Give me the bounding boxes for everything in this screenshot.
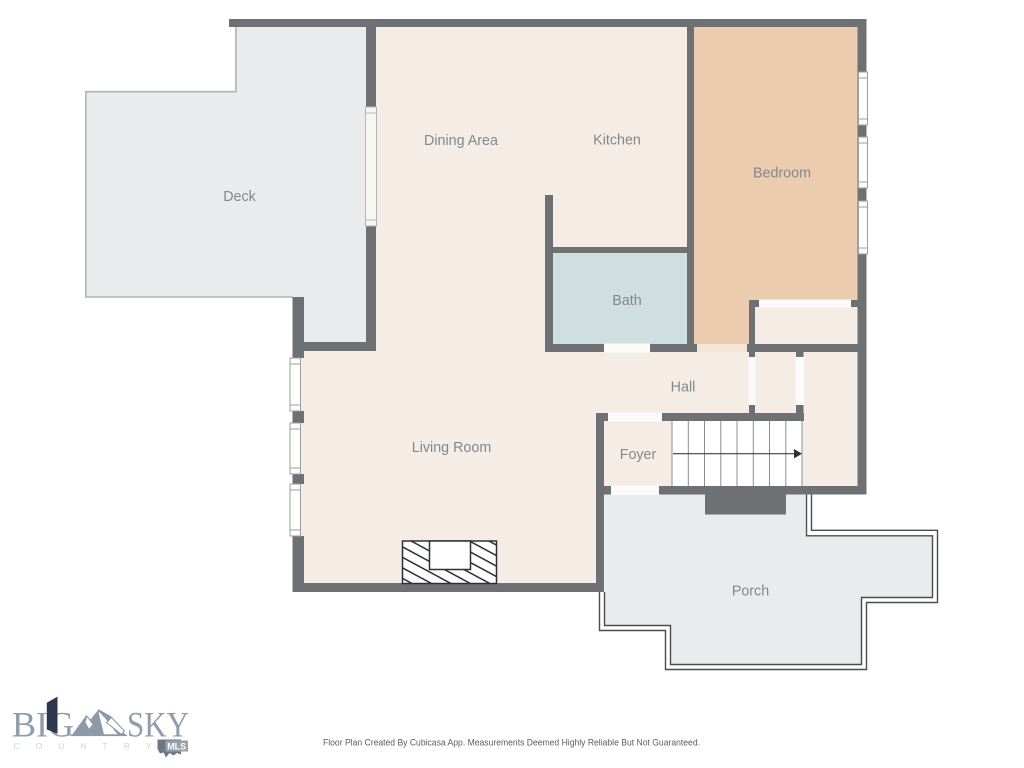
svg-text:Foyer: Foyer — [620, 447, 657, 463]
svg-text:Bedroom: Bedroom — [753, 166, 811, 182]
svg-text:Living Room: Living Room — [412, 440, 491, 456]
svg-text:MLS: MLS — [167, 741, 186, 751]
svg-text:COUNTRY: COUNTRY — [14, 741, 168, 751]
svg-text:Bath: Bath — [612, 293, 641, 309]
svg-text:Floor Plan Created By Cubicasa: Floor Plan Created By Cubicasa App. Meas… — [323, 737, 700, 747]
svg-text:Dining Area: Dining Area — [424, 133, 498, 149]
svg-text:Deck: Deck — [223, 189, 256, 205]
svg-text:Kitchen: Kitchen — [593, 133, 641, 149]
svg-text:Hall: Hall — [671, 380, 696, 396]
svg-text:Porch: Porch — [732, 584, 769, 600]
svg-text:BIG: BIG — [12, 705, 74, 745]
svg-text:SKY: SKY — [127, 705, 189, 745]
